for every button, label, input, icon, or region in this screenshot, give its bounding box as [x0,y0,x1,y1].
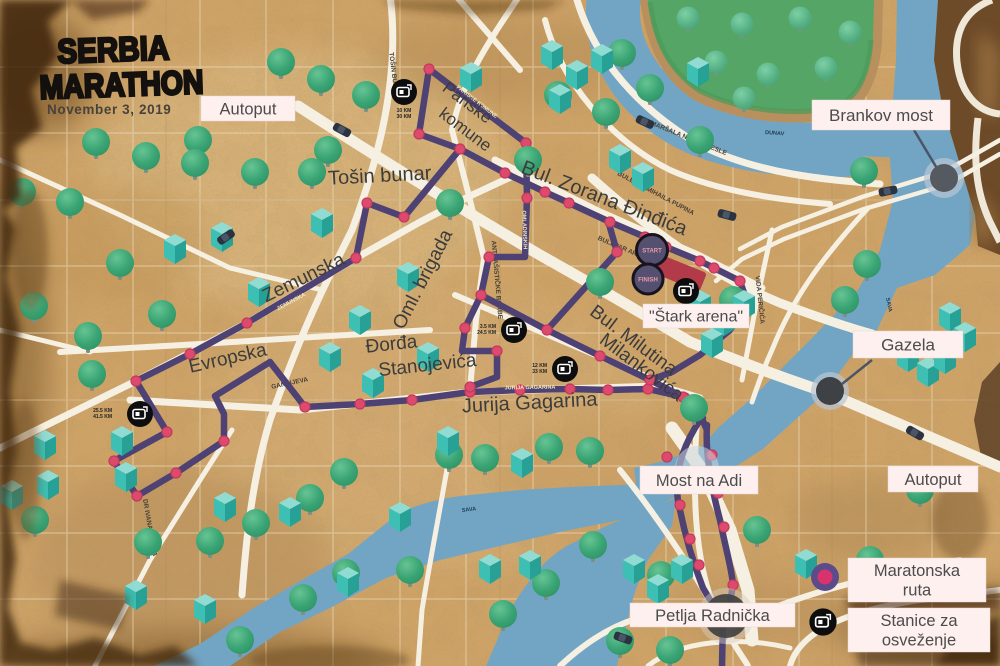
svg-text:Autoput: Autoput [220,100,277,118]
svg-text:33 KM: 33 KM [532,369,547,375]
svg-text:24.5 KM: 24.5 KM [477,330,496,336]
svg-text:Autoput: Autoput [905,471,962,489]
svg-text:November 3, 2019: November 3, 2019 [47,102,171,117]
svg-text:MARATHON: MARATHON [39,63,204,106]
svg-text:ruta: ruta [903,582,932,600]
svg-text:START: START [642,249,662,255]
svg-text:FINISH: FINISH [638,278,658,284]
svg-text:41.5 KM: 41.5 KM [93,414,112,420]
svg-text:Most na Adi: Most na Adi [656,472,742,490]
svg-text:Stanice za: Stanice za [880,612,958,630]
svg-text:Brankov most: Brankov most [829,106,933,125]
svg-text:30 KM: 30 KM [397,114,412,120]
svg-text:osveženje: osveženje [882,632,956,650]
svg-text:Maratonska: Maratonska [874,562,961,580]
svg-text:Gazela: Gazela [881,335,935,354]
svg-text:"Štark arena": "Štark arena" [649,307,743,326]
svg-text:Petlja Radnička: Petlja Radnička [655,607,770,625]
